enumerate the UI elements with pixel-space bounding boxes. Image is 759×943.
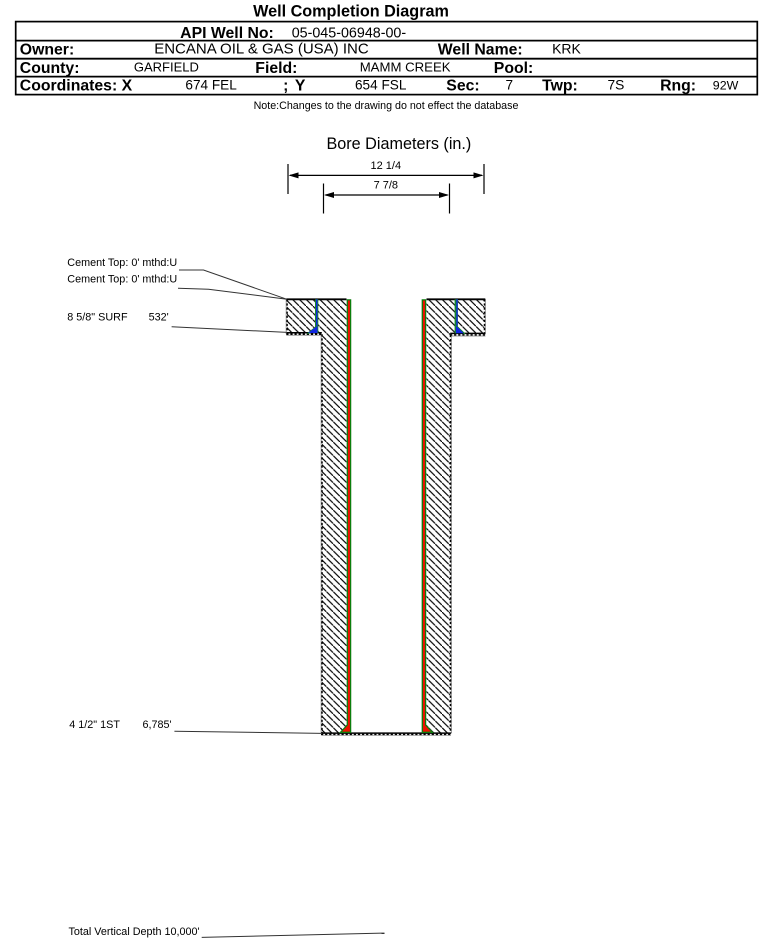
svg-text:; Y: ; Y (283, 77, 307, 94)
svg-text:Bore Diameters (in.): Bore Diameters (in.) (326, 135, 471, 153)
svg-text:Field:: Field: (255, 60, 297, 77)
svg-text:Total Vertical Depth 10,000': Total Vertical Depth 10,000' (69, 926, 200, 938)
svg-text:4 1/2" 1ST: 4 1/2" 1ST (69, 719, 120, 731)
svg-text:KRK: KRK (552, 41, 581, 57)
svg-text:GARFIELD: GARFIELD (134, 59, 199, 74)
svg-text:API Well No:: API Well No: (180, 25, 274, 42)
svg-text:Twp:: Twp: (542, 77, 578, 94)
svg-text:Pool:: Pool: (494, 60, 534, 77)
svg-text:92W: 92W (713, 78, 739, 92)
svg-text:05-045-06948-00-: 05-045-06948-00- (292, 26, 407, 42)
svg-text:Coordinates: X: Coordinates: X (20, 77, 133, 94)
svg-text:7S: 7S (608, 77, 625, 92)
svg-text:674 FEL: 674 FEL (185, 77, 237, 92)
svg-text:654 FSL: 654 FSL (355, 77, 407, 92)
svg-text:Rng:: Rng: (660, 77, 696, 94)
svg-text:Owner:: Owner: (20, 41, 74, 58)
svg-text:6,785': 6,785' (143, 719, 172, 731)
svg-text:Note:Changes to the drawing do: Note:Changes to the drawing do not effec… (254, 100, 519, 112)
svg-text:MAMM CREEK: MAMM CREEK (360, 59, 451, 74)
svg-text:ENCANA OIL & GAS (USA) INC: ENCANA OIL & GAS (USA) INC (154, 41, 369, 58)
svg-text:County:: County: (20, 60, 80, 77)
svg-text:Cement Top: 0' mthd:U: Cement Top: 0' mthd:U (67, 257, 177, 269)
svg-text:Cement Top: 0' mthd:U: Cement Top: 0' mthd:U (67, 274, 177, 286)
svg-text:7 7/8: 7 7/8 (374, 179, 398, 191)
svg-text:Well Completion Diagram: Well Completion Diagram (253, 3, 449, 21)
svg-text:12 1/4: 12 1/4 (371, 160, 402, 172)
svg-text:532': 532' (149, 311, 169, 323)
svg-text:Sec:: Sec: (446, 77, 479, 94)
svg-text:Well Name:: Well Name: (438, 41, 523, 58)
svg-text:8 5/8" SURF: 8 5/8" SURF (67, 311, 128, 323)
svg-text:7: 7 (506, 77, 514, 92)
